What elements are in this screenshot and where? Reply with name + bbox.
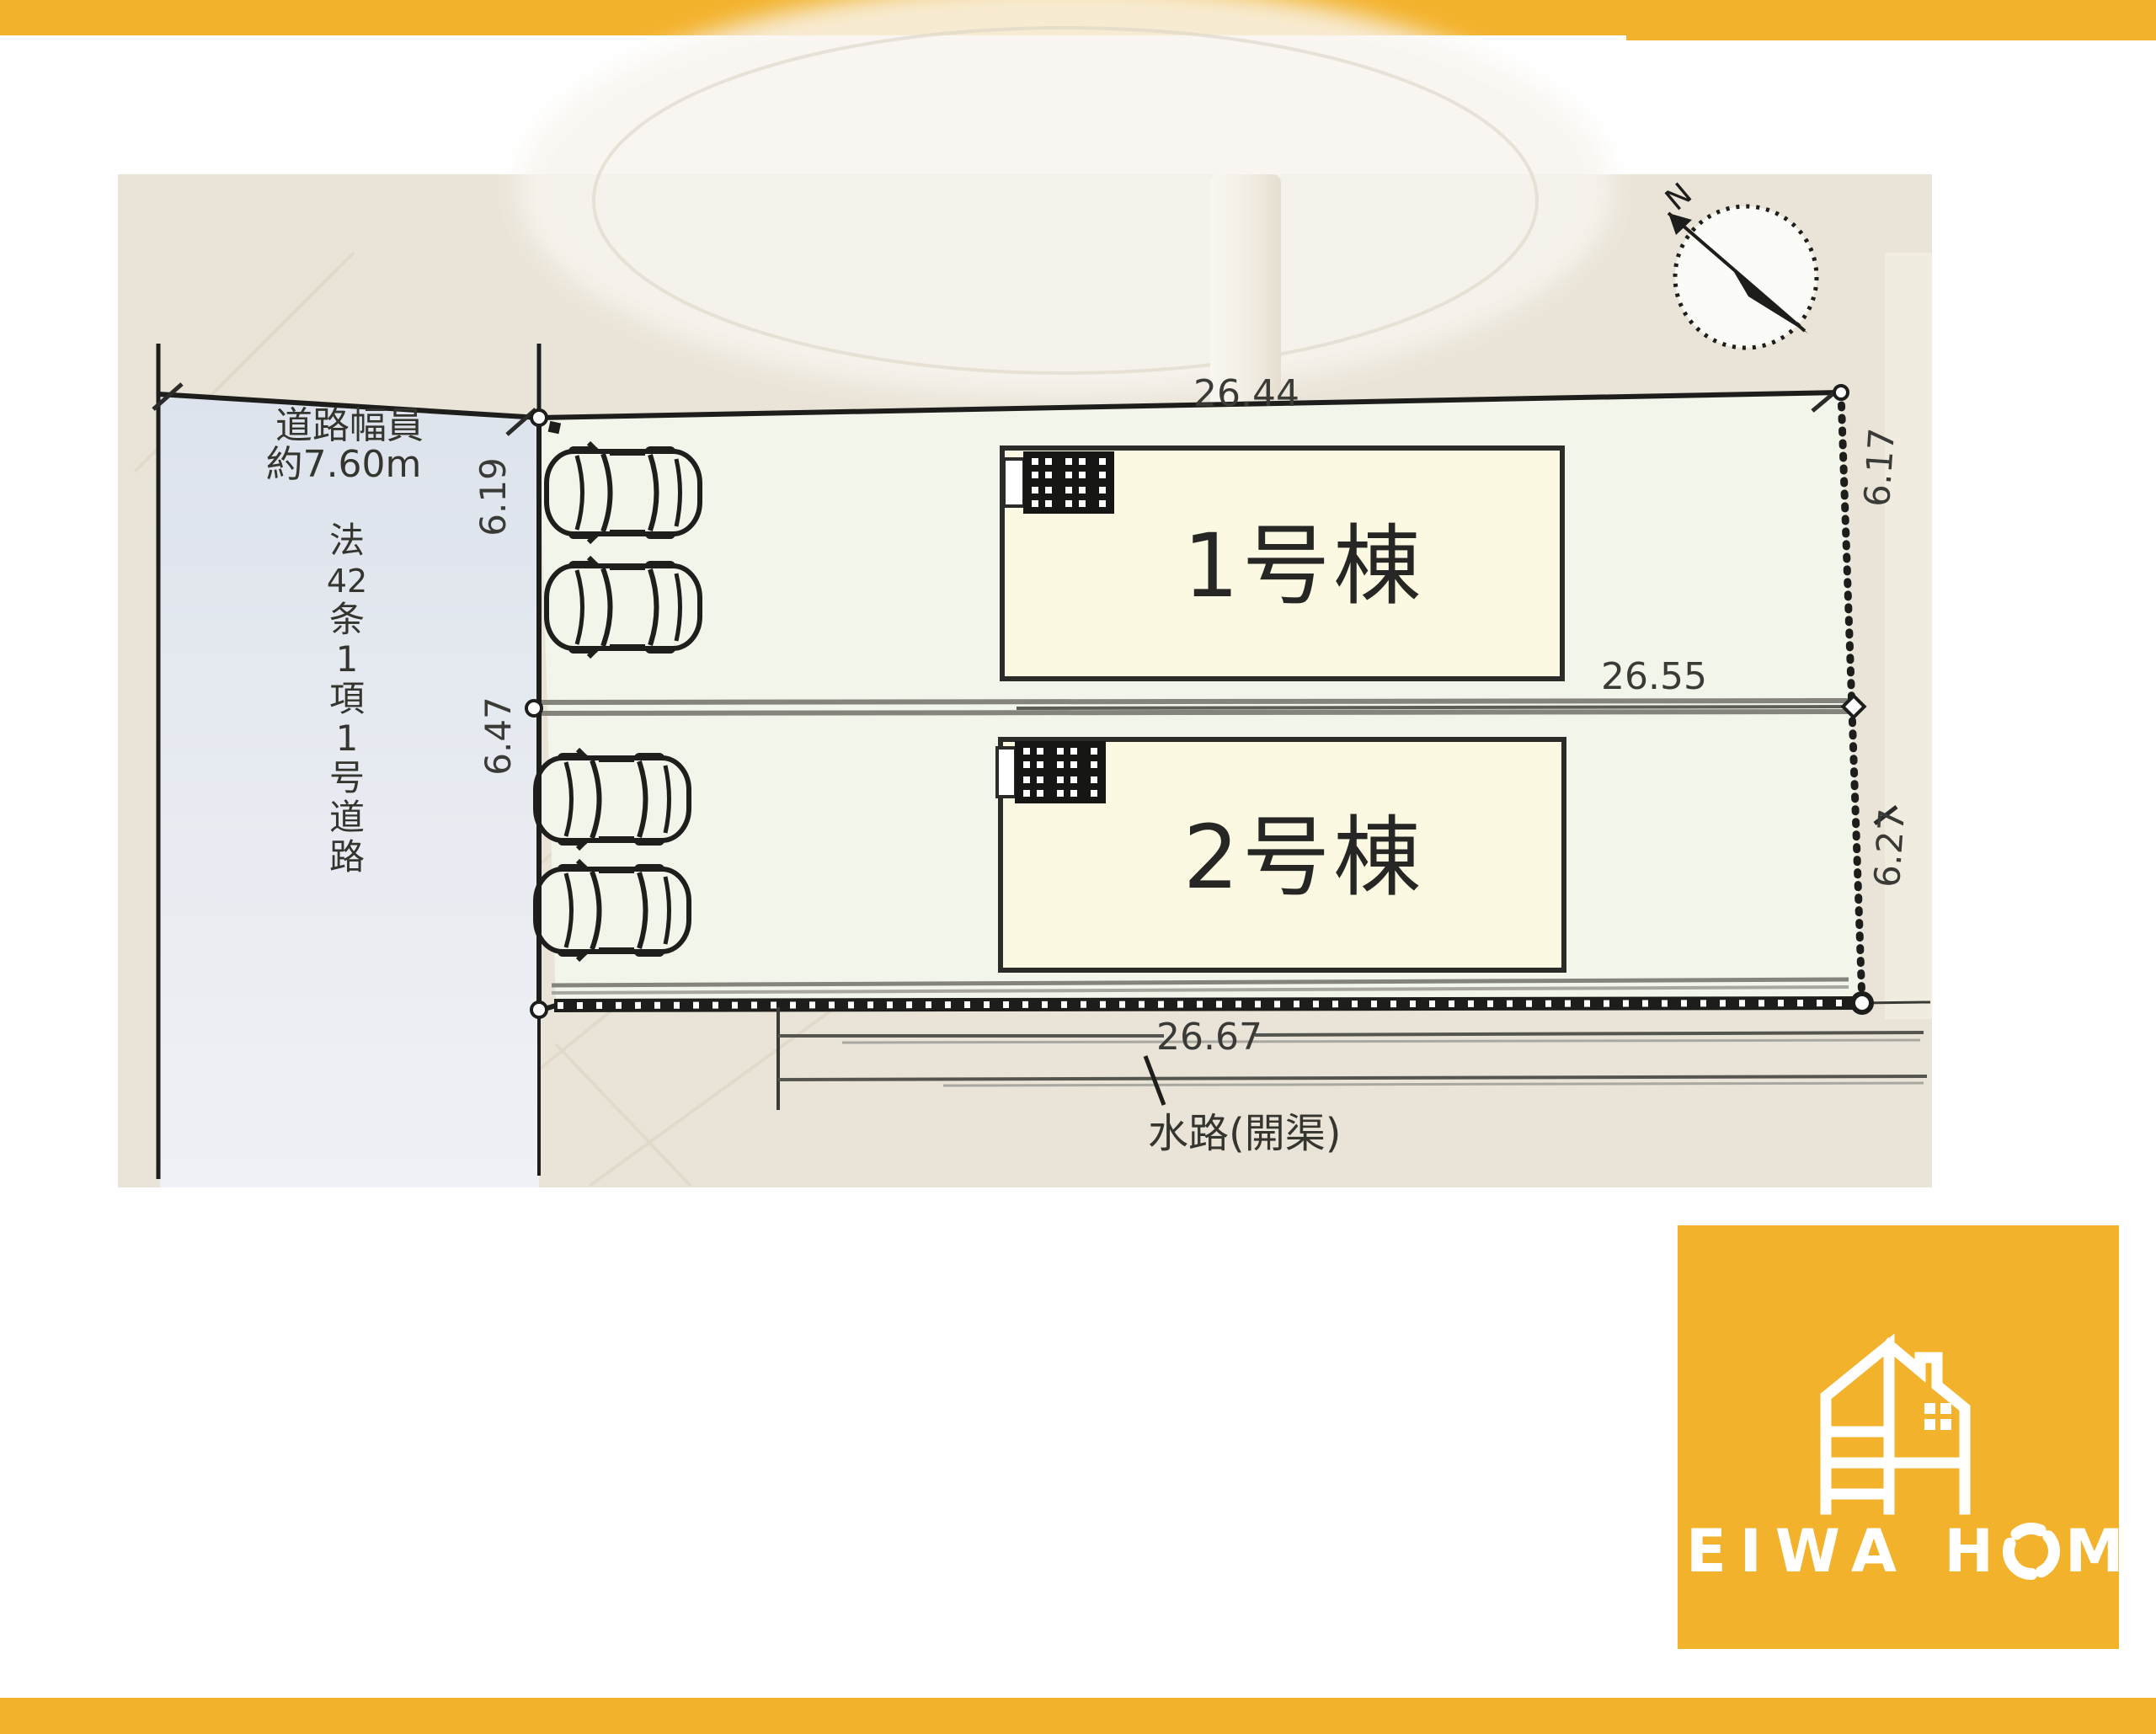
- logo-wordmark: EIWA H ME: [1686, 1517, 2156, 1586]
- porch-step-1: [1004, 459, 1024, 506]
- compass-circle: [1675, 206, 1817, 348]
- logo-text-post: ME: [2065, 1517, 2156, 1586]
- car-1-plot1: [547, 443, 700, 542]
- road-width-label: 道路幅員 約7.60m: [266, 404, 424, 486]
- svg-text:1: 1: [336, 718, 359, 759]
- dim-top-26-44: 26.44: [1193, 372, 1299, 415]
- building-2-label: 2号棟: [1183, 806, 1424, 909]
- dim-right-upper-6-17: 6.17: [1856, 427, 1903, 509]
- svg-text:道: 道: [329, 797, 365, 838]
- building-2: 2号棟: [997, 739, 1564, 970]
- car-3-plot2: [536, 750, 689, 849]
- porch-step-2: [997, 748, 1016, 797]
- bottom-bar: [0, 1698, 2156, 1734]
- svg-text:約7.60m: 約7.60m: [266, 443, 422, 486]
- dim-left-lower-6-47: 6.47: [478, 696, 519, 776]
- dim-right-lower-6-27: 6.27: [1866, 808, 1913, 889]
- svg-text:法: 法: [329, 520, 365, 561]
- svg-text:1: 1: [336, 638, 359, 680]
- building-1-porch: [1023, 451, 1114, 514]
- water-channel-label: 水路(開渠): [1148, 1110, 1341, 1157]
- svg-text:42: 42: [327, 563, 367, 600]
- page-canvas: 1号棟 2号棟: [0, 0, 2156, 1734]
- svg-text:道路幅員: 道路幅員: [275, 404, 424, 447]
- building-1: 1号棟: [1002, 448, 1562, 679]
- car-2-plot1: [547, 558, 700, 657]
- logo-text-pre: EIWA H: [1686, 1517, 2007, 1586]
- dim-bottom-26-67: 26.67: [1156, 1016, 1262, 1059]
- car-4-plot2: [536, 861, 689, 960]
- svg-text:条: 条: [329, 599, 365, 640]
- svg-text:号: 号: [329, 757, 365, 798]
- building-2-porch: [1015, 741, 1106, 803]
- dim-left-upper-6-19: 6.19: [472, 457, 514, 536]
- top-bar-right-segment: [1626, 0, 2156, 40]
- svg-text:項: 項: [329, 678, 365, 719]
- dim-mid-26-55: 26.55: [1601, 655, 1707, 698]
- svg-text:路: 路: [329, 836, 365, 878]
- logo-block: EIWA H ME: [1678, 1225, 2156, 1649]
- building-1-label: 1号棟: [1183, 515, 1424, 617]
- road-classification-vertical-label: 法 42 条 1 項 1 号 道 路: [327, 520, 367, 878]
